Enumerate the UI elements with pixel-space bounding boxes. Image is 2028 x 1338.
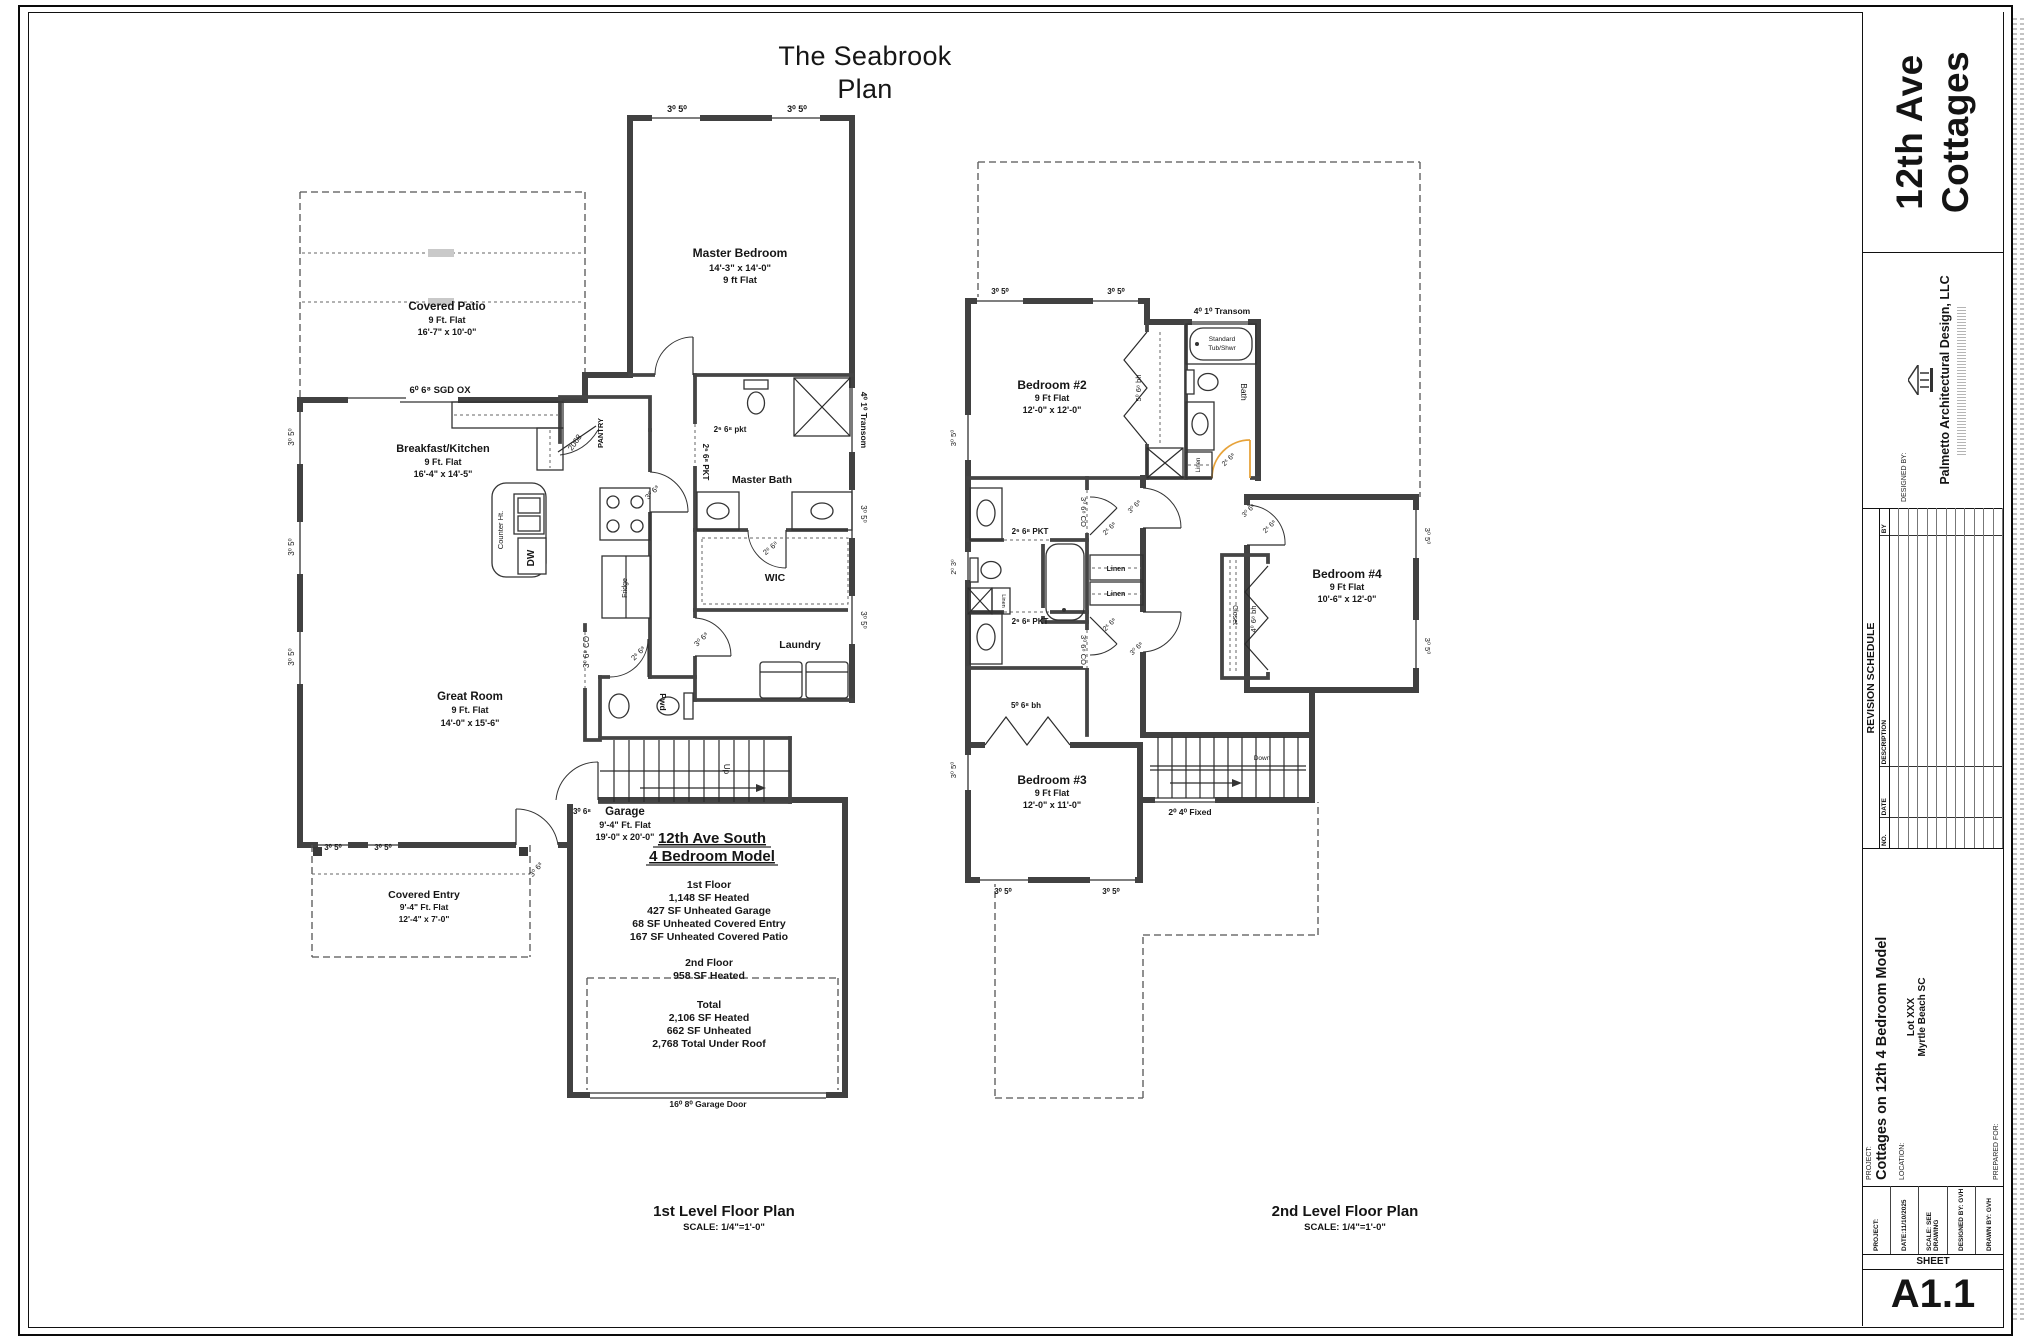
label-b4-closet: Closet xyxy=(1231,605,1238,625)
revision-col-description: DESCRIPTION xyxy=(1880,535,1889,766)
revision-row xyxy=(1918,508,1927,848)
label-dim-breakfast-kitchen: 16'-4" x 14'-5" xyxy=(414,469,473,479)
label-tub-line2: Tub/Shwr xyxy=(1208,345,1236,352)
meta-designed-by: DESIGNED BY: GVH xyxy=(1948,1186,1976,1254)
label-room-bedroom3: Bedroom #3 xyxy=(1017,773,1087,787)
revision-row xyxy=(1890,508,1899,848)
label-transom-label: 4⁰ 1⁰ Transom xyxy=(859,392,869,449)
location-label: LOCATION: xyxy=(1899,1143,1906,1180)
titleblock-project-info: PROJECT: Cottages on 12th 4 Bedroom Mode… xyxy=(1863,848,2003,1187)
label-win-b3-left: 3⁰ 5⁰ xyxy=(949,762,958,778)
label-ht-great: 9 Ft. Flat xyxy=(451,705,488,715)
revision-row xyxy=(1994,508,2003,848)
label-dim-bedroom2: 12'-0" x 12'-0" xyxy=(1023,405,1082,415)
plan1-labels: 3⁰ 5⁰3⁰ 5⁰Master Bedroom14'-3" x 14'-0"9… xyxy=(287,104,869,1109)
label-counter-ht: Counter Ht. xyxy=(496,511,505,549)
label-stairs-down: Down xyxy=(1254,755,1271,762)
titleblock-meta: PROJECT: DATE:11/10/2025 SCALE: SEE DRAW… xyxy=(1863,1186,2003,1255)
label-room-breakfast-kitchen: Breakfast/Kitchen xyxy=(396,443,490,455)
label-win-left-3: 3⁰ 5⁰ xyxy=(287,648,296,666)
revision-rows xyxy=(1890,508,2003,848)
label-linen-2: Linen xyxy=(1107,591,1126,598)
label-mb-pkt2: 2⁶ 6⁸ PKT xyxy=(701,444,710,481)
meta-date: DATE:11/10/2025 xyxy=(1891,1186,1919,1254)
label-room-laundry: Laundry xyxy=(779,639,821,651)
label-dim-covered-entry: 12'-4" x 7'-0" xyxy=(399,914,450,924)
label-pwd-door: 2⁶ 6⁸ xyxy=(629,644,647,662)
label-ht-bedroom2: 9 Ft Flat xyxy=(1035,393,1070,403)
label-room-bedroom4: Bedroom #4 xyxy=(1312,567,1382,581)
label-room-covered-patio: Covered Patio xyxy=(408,301,485,313)
sheet-label: SHEET xyxy=(1863,1254,2003,1270)
label-ht-covered-patio: 9 Ft. Flat xyxy=(428,315,465,325)
label-hall-door1: 3⁰ 6⁸ xyxy=(643,483,661,501)
label-room-covered-entry: Covered Entry xyxy=(388,889,460,901)
label-sf-heated-2: 958 SF Heated xyxy=(673,970,745,982)
label-win-left-2: 3⁰ 5⁰ xyxy=(287,538,296,556)
plan1-caption: 1st Level Floor Plan SCALE: 1/4"=1'-0" xyxy=(554,1203,894,1233)
label-dim-garage: 19'-0" x 20'-0" xyxy=(596,832,655,842)
firm-name: Palmetto Architectural Design, LLC xyxy=(1938,275,1952,484)
title-block: 12th Ave Cottages DESIGNED BY: Palmetto … xyxy=(1862,12,2003,1326)
label-dw-label: DW xyxy=(526,549,537,566)
revision-row xyxy=(1984,508,1993,848)
meta-project: PROJECT: xyxy=(1863,1186,1891,1254)
label-sf-under-roof: 2,768 Total Under Roof xyxy=(652,1038,766,1050)
label-win-b4-1: 3⁰ 5⁰ xyxy=(1423,528,1432,544)
label-room-great: Great Room xyxy=(437,691,503,703)
label-room-bedroom2: Bedroom #2 xyxy=(1017,378,1087,392)
label-dim-great: 14'-0" x 15'-6" xyxy=(441,718,500,728)
label-win-left-1: 3⁰ 5⁰ xyxy=(287,428,296,446)
label-sf-patio: 167 SF Unheated Covered Patio xyxy=(630,931,788,943)
label-pantry-label: PANTRY xyxy=(596,418,605,448)
meta-scale: SCALE: SEE DRAWING xyxy=(1919,1186,1947,1254)
location-line1: Lot XXX xyxy=(1906,854,1917,1180)
label-sgd-label: 6⁰ 6⁸ SGD OX xyxy=(409,385,471,396)
label-b3-closet-door: 5⁰ 6⁸ bh xyxy=(1011,701,1041,710)
plan2-walls xyxy=(968,162,1420,1098)
label-ht-master-bedroom: 9 ft Flat xyxy=(723,275,758,286)
label-b4-door2: 2⁶ 6⁸ xyxy=(1262,519,1278,535)
label-sf-1st-floor: 1st Floor xyxy=(687,879,731,891)
label-b2-closet-door: 5⁰ 6⁸ bh xyxy=(1134,374,1143,401)
label-b4-closet-door: 4⁰ 6⁸ bh xyxy=(1249,605,1258,632)
label-pantry-door: 2068 xyxy=(566,432,584,452)
label-sf-total-unheated: 662 SF Unheated xyxy=(667,1025,752,1037)
label-door-c: 2⁶ 6⁸ xyxy=(1102,617,1118,633)
label-sf-total-heated: 2,106 SF Heated xyxy=(669,1012,750,1024)
label-dim-bedroom3: 12'-0" x 11'-0" xyxy=(1023,800,1081,810)
project-label: PROJECT: xyxy=(1866,1146,1873,1180)
project-name: Cottages on 12th 4 Bedroom Model xyxy=(1874,854,1890,1180)
label-co-kitchen: 3⁰ 6⁸ CO xyxy=(582,636,591,668)
plan2-caption: 2nd Level Floor Plan SCALE: 1/4"=1'-0" xyxy=(1175,1203,1515,1233)
label-model-line2: 4 Bedroom Model xyxy=(649,848,775,865)
label-win-b2-left: 3⁰ 5⁰ xyxy=(949,430,958,446)
label-win-right-1: 3⁰ 5⁰ xyxy=(859,505,868,523)
drawing-sheet: The Seabrook Plan xyxy=(0,0,2028,1338)
big-title-line1: 12th Ave xyxy=(1887,54,1933,210)
revision-row xyxy=(1947,508,1956,848)
big-title-line2: Cottages xyxy=(1933,51,1979,213)
label-dim-bedroom4: 10'-6" x 12'-0" xyxy=(1318,594,1377,604)
label-transom2-label: 4⁰ 1⁰ Transom xyxy=(1194,306,1251,316)
label-tub-line1: Standard xyxy=(1209,336,1236,343)
label-ht-bedroom4: 9 Ft Flat xyxy=(1330,582,1365,592)
label-win-b2-1: 3⁰ 5⁰ xyxy=(991,287,1009,296)
fine-print-strip xyxy=(2013,18,2017,1320)
label-win-b3-1: 3⁰ 5⁰ xyxy=(994,887,1012,896)
label-sf-heated-1: 1,148 SF Heated xyxy=(669,892,750,904)
titleblock-revision: REVISION SCHEDULE NO. DATE DESCRIPTION B… xyxy=(1863,508,2003,849)
label-win-front-2: 3⁰ 5⁰ xyxy=(374,843,392,852)
label-ht-garage: 9'-4" Ft. Flat xyxy=(599,820,650,830)
label-sf-garage: 427 SF Unheated Garage xyxy=(647,905,771,917)
label-sf-2nd-floor: 2nd Floor xyxy=(685,957,733,969)
prepared-for-label: PREPARED FOR: xyxy=(1993,1123,2000,1180)
label-mb-pkt1: 2⁶ 6⁸ pkt xyxy=(714,425,747,434)
label-win-b3-2: 3⁰ 5⁰ xyxy=(1102,887,1120,896)
label-room-master-bedroom: Master Bedroom xyxy=(693,246,788,260)
revision-header: NO. DATE DESCRIPTION BY xyxy=(1880,508,1890,848)
label-room-garage: Garage xyxy=(605,806,645,818)
label-wic-door: 2⁶ 6⁸ xyxy=(761,539,780,557)
plan1-caption-scale: SCALE: 1/4"=1'-0" xyxy=(554,1222,894,1233)
label-ht-covered-entry: 9'-4" Ft. Flat xyxy=(400,902,449,912)
label-dim-covered-patio: 16'-7" x 10'-0" xyxy=(418,327,477,337)
label-door-b: 2⁶ 6⁸ xyxy=(1102,521,1118,537)
label-fixed-window: 2⁰ 4⁰ Fixed xyxy=(1168,807,1211,817)
label-garage-entry-door: 3⁰ 6⁸ xyxy=(573,807,591,816)
titleblock-designer: DESIGNED BY: Palmetto Architectural Desi… xyxy=(1863,252,2003,509)
label-win-b4-2: 3⁰ 5⁰ xyxy=(1423,638,1432,654)
label-bath-door: 2⁶ 6⁸ xyxy=(1221,452,1237,468)
label-bath-linen: Linen xyxy=(1196,458,1202,473)
revision-col-by: BY xyxy=(1880,508,1889,535)
revision-col-no: NO. xyxy=(1880,817,1889,848)
label-pwd-label: Pwd xyxy=(658,693,668,710)
label-win-b2-2: 3⁰ 5⁰ xyxy=(1107,287,1125,296)
palmetto-logo xyxy=(1908,365,1934,395)
label-model-line1: 12th Ave South xyxy=(658,830,766,847)
revision-title: REVISION SCHEDULE xyxy=(1863,508,1880,848)
label-room-master-bath: Master Bath xyxy=(732,474,792,486)
firm-address-microtext xyxy=(1957,305,1966,455)
plan2-caption-scale: SCALE: 1/4"=1'-0" xyxy=(1175,1222,1515,1233)
designed-by-label: DESIGNED BY: xyxy=(1901,453,1908,502)
revision-row xyxy=(1899,508,1908,848)
location-line2: Myrtle Beach SC xyxy=(1917,854,1928,1180)
sheet-number: A1.1 xyxy=(1891,1272,1976,1317)
meta-drawn-by: DRAWN BY: GVH xyxy=(1976,1186,2003,1254)
label-sf-total: Total xyxy=(697,999,721,1011)
label-co-b: 3⁰ 6⁸ CO xyxy=(1079,635,1088,665)
label-co-a: 3⁰ 6⁸ CO xyxy=(1079,497,1088,527)
label-dim-master-bedroom: 14'-3" x 14'-0" xyxy=(709,263,771,274)
titleblock-project-big: 12th Ave Cottages xyxy=(1863,12,2003,253)
label-win-mbr-1: 3⁰ 5⁰ xyxy=(667,104,687,114)
label-win-mbr-2: 3⁰ 5⁰ xyxy=(787,104,807,114)
label-fridge-label: Fridge xyxy=(622,578,629,598)
floor-plans-drawing: 3⁰ 5⁰3⁰ 5⁰Master Bedroom14'-3" x 14'-0"9… xyxy=(0,0,2028,1338)
label-garage-door-label: 16⁰ 8⁰ Garage Door xyxy=(669,1099,747,1109)
plan2-caption-title: 2nd Level Floor Plan xyxy=(1175,1203,1515,1220)
revision-row xyxy=(1928,508,1937,848)
revision-row xyxy=(1965,508,1974,848)
label-linen-small: Linen xyxy=(1000,594,1006,607)
fine-print-strip-2 xyxy=(2020,18,2024,1320)
label-ht-breakfast-kitchen: 9 Ft. Flat xyxy=(424,457,461,467)
label-win-right-2: 3⁰ 5⁰ xyxy=(859,611,868,629)
label-win-front-1: 3⁰ 5⁰ xyxy=(324,843,342,852)
revision-row xyxy=(1956,508,1965,848)
label-room-wic: WIC xyxy=(765,572,786,584)
revision-col-date: DATE xyxy=(1880,766,1889,817)
label-pkt-b: 2⁶ 6⁸ PKT xyxy=(1012,617,1049,626)
revision-row xyxy=(1909,508,1918,848)
label-bath-label: Bath xyxy=(1239,383,1249,401)
titleblock-sheet: SHEET A1.1 xyxy=(1863,1254,2003,1326)
plan1-caption-title: 1st Level Floor Plan xyxy=(554,1203,894,1220)
revision-row xyxy=(1975,508,1984,848)
label-toilet-win: 2⁰ 3⁰ xyxy=(950,559,958,575)
revision-row xyxy=(1937,508,1946,848)
label-ht-bedroom3: 9 Ft Flat xyxy=(1035,788,1070,798)
label-stairs-up: Up xyxy=(722,764,731,775)
label-sf-entry: 68 SF Unheated Covered Entry xyxy=(632,918,786,930)
label-linen-1: Linen xyxy=(1107,566,1126,573)
label-pkt-a: 2⁶ 6⁸ PKT xyxy=(1012,527,1049,536)
